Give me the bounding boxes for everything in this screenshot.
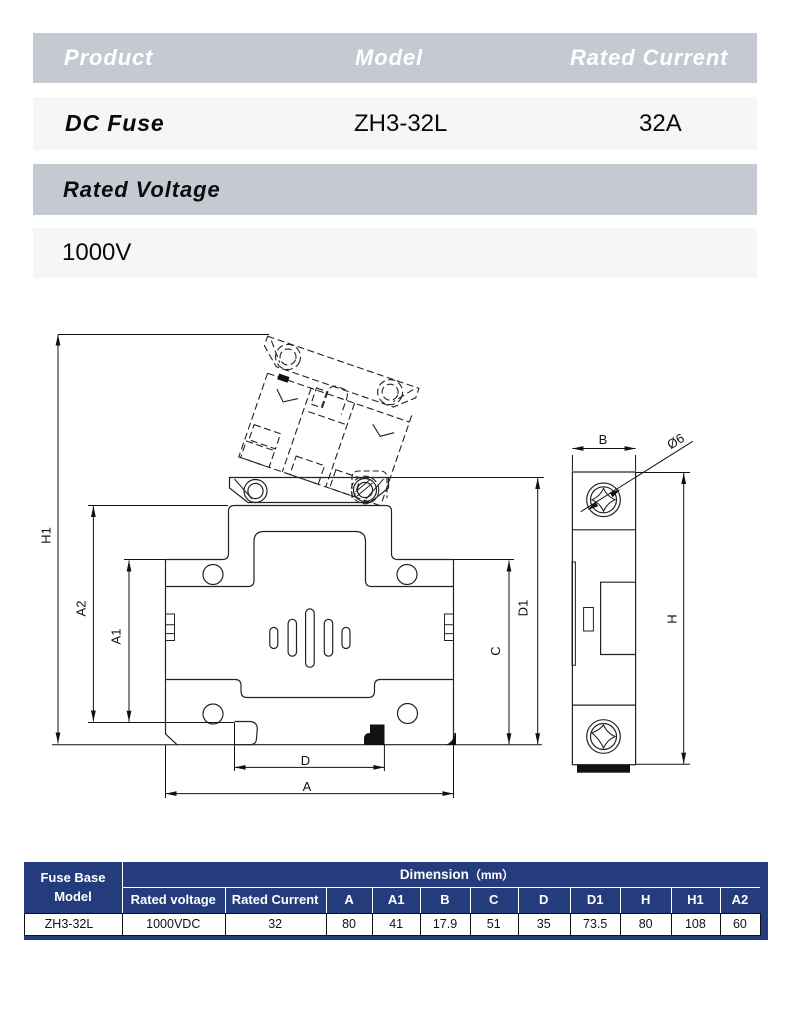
svg-text:Ø6: Ø6 — [664, 430, 687, 452]
svg-text:H: H — [665, 614, 680, 623]
svg-text:B: B — [599, 432, 608, 447]
svg-text:A2: A2 — [74, 601, 89, 617]
svg-text:A1: A1 — [109, 629, 124, 645]
svg-text:D1: D1 — [516, 600, 531, 617]
svg-text:D: D — [301, 753, 310, 768]
svg-text:H1: H1 — [39, 527, 54, 544]
svg-text:A: A — [303, 779, 312, 794]
svg-text:C: C — [488, 646, 503, 655]
